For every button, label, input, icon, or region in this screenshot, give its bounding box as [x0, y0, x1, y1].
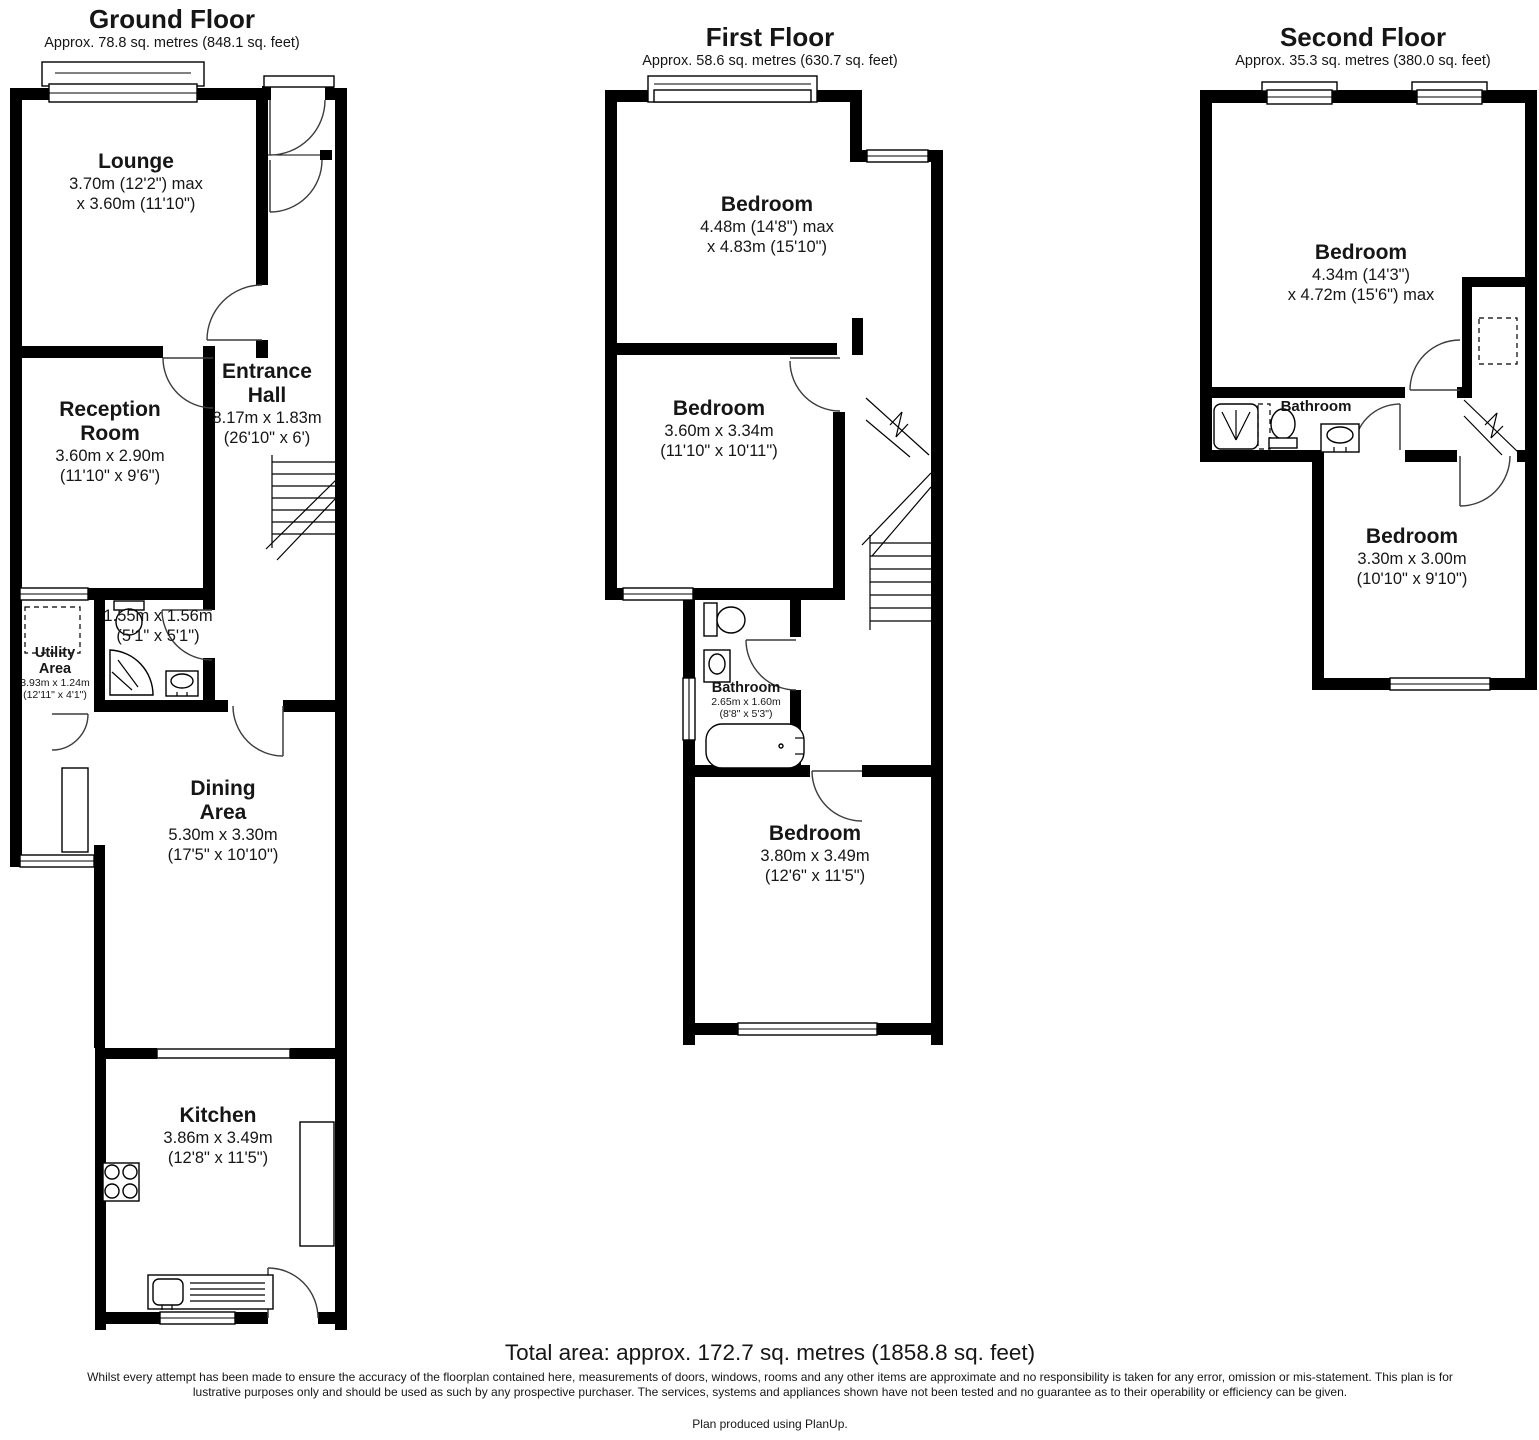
- ground-floor-title: Ground Floor Approx. 78.8 sq. metres (84…: [44, 4, 300, 53]
- room-label-sf-bathroom: Bathroom: [1281, 399, 1352, 415]
- room-label-ff-bedroom3: Bedroom 3.80m x 3.49m (12'6" x 11'5"): [760, 822, 869, 886]
- ground-stairs: [266, 455, 336, 560]
- floor-area-text: Approx. 35.3 sq. metres (380.0 sq. feet): [1235, 52, 1491, 71]
- first-stairs: [862, 398, 931, 630]
- floor-area-text: Approx. 78.8 sq. metres (848.1 sq. feet): [44, 34, 300, 53]
- floor-title-text: Ground Floor: [44, 4, 300, 34]
- second-stairs: [1464, 400, 1518, 455]
- room-label-sf-bedroom2: Bedroom 3.30m x 3.00m (10'10" x 9'10"): [1357, 525, 1468, 589]
- second-floor-title: Second Floor Approx. 35.3 sq. metres (38…: [1235, 22, 1491, 71]
- front-door-canopy: [264, 76, 334, 87]
- lounge-bay-window: [42, 62, 204, 86]
- room-label-lounge: Lounge 3.70m (12'2") max x 3.60m (11'10"…: [69, 150, 203, 214]
- room-label-ff-bathroom: Bathroom 2.65m x 1.60m (8'8" x 5'3"): [711, 680, 780, 720]
- utility-counter: [62, 768, 88, 852]
- shower-icon: [110, 650, 153, 695]
- floorplan-page: Ground Floor Approx. 78.8 sq. metres (84…: [0, 0, 1539, 1440]
- toilet-icon: [704, 603, 717, 636]
- room-label-ff-bedroom2: Bedroom 3.60m x 3.34m (11'10" x 10'11"): [660, 397, 777, 461]
- second-floor-plan: [1200, 82, 1537, 690]
- floor-area-text: Approx. 58.6 sq. metres (630.7 sq. feet): [642, 52, 898, 71]
- rooflight: [1479, 318, 1517, 364]
- room-label-kitchen: Kitchen 3.86m x 3.49m (12'8" x 11'5"): [163, 1104, 272, 1168]
- disclaimer-text: Whilst every attempt has been made to en…: [75, 1370, 1465, 1400]
- first-floor-title: First Floor Approx. 58.6 sq. metres (630…: [642, 22, 898, 71]
- room-label-sf-bedroom1: Bedroom 4.34m (14'3") x 4.72m (15'6") ma…: [1288, 241, 1435, 305]
- room-label-utility: Utility Area 3.93m x 1.24m (12'11" x 4'1…: [20, 645, 89, 701]
- room-label-reception: Reception Room 3.60m x 2.90m (11'10" x 9…: [45, 398, 175, 486]
- kitchen-counter: [300, 1122, 334, 1246]
- room-label-ff-bedroom1: Bedroom 4.48m (14'8") max x 4.83m (15'10…: [700, 193, 834, 257]
- room-label-shower-room: 1.55m x 1.56m (5'1" x 5'1"): [103, 606, 212, 646]
- floor-title-text: Second Floor: [1235, 22, 1491, 52]
- room-label-dining: Dining Area 5.30m x 3.30m (17'5" x 10'10…: [168, 777, 279, 865]
- floor-title-text: First Floor: [642, 22, 898, 52]
- room-label-entrance-hall: Entrance Hall 8.17m x 1.83m (26'10" x 6'…: [212, 360, 321, 448]
- total-area-text: Total area: approx. 172.7 sq. metres (18…: [505, 1340, 1035, 1366]
- bathtub-icon: [706, 724, 804, 768]
- credit-text: Plan produced using PlanUp.: [692, 1417, 847, 1431]
- kitchen-opening: [157, 1049, 290, 1058]
